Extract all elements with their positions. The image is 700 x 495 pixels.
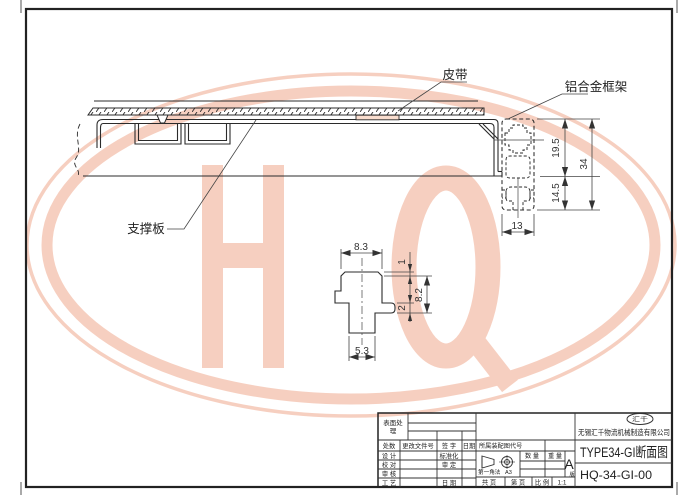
assembly-code-label: 所属装配图代号 xyxy=(479,442,522,450)
page-number-label: 第 页 xyxy=(511,478,525,487)
drawing-number: HQ-34-GI-00 xyxy=(580,470,652,482)
hq-letter-h xyxy=(202,165,284,368)
surface-treatment-label2: 理 xyxy=(390,427,397,435)
logo-text: 汇千 xyxy=(632,416,648,424)
version-suffix: 版 xyxy=(569,471,574,478)
surface-treatment-label: 表面处 xyxy=(383,418,403,427)
mid-standardize: 标准化 xyxy=(440,451,460,460)
dim-14-5: 14.5 xyxy=(551,183,562,203)
drawing-sheet: 皮带 铝合金框架 支撑板 19.5 14.5 34 13 xyxy=(0,0,700,495)
title-block: 表面处 理 处数 更改文件号 签 字 日期 设 计 校 对 审 核 工 艺 标准… xyxy=(378,413,672,487)
rev-header-count: 处数 xyxy=(383,441,396,450)
aluminum-frame-label: 铝合金框架 xyxy=(565,79,628,94)
belt-label: 皮带 xyxy=(442,68,467,82)
rev-header-date: 日期 xyxy=(463,442,476,450)
dim-34: 34 xyxy=(579,158,590,170)
row-process: 工 艺 xyxy=(382,479,396,487)
dim-5-3: 5.3 xyxy=(355,346,369,357)
rev-header-sign: 签 字 xyxy=(442,441,456,450)
aluminum-profile-section xyxy=(494,119,544,218)
row-check: 校 对 xyxy=(382,460,397,469)
dim-19-5: 19.5 xyxy=(551,138,562,158)
sheet-size: A3 xyxy=(505,470,512,476)
company-logo: 汇千 xyxy=(627,414,653,425)
dim-1: 1 xyxy=(397,259,408,265)
belt-section xyxy=(88,101,484,115)
drawing-title: TYPE34-GI断面图 xyxy=(580,445,668,460)
version-letter: A xyxy=(564,456,574,472)
projection-method-label: 第一角法 xyxy=(478,468,501,476)
row-design: 设 计 xyxy=(382,451,397,460)
support-plate-label: 支撑板 xyxy=(127,221,165,236)
pages-total-label: 共 页 xyxy=(482,478,496,487)
rev-header-docno: 更改文件号 xyxy=(402,441,433,450)
hq-watermark xyxy=(27,74,675,416)
main-dimensions: 19.5 14.5 34 13 xyxy=(502,119,600,236)
belt-guide-strip xyxy=(356,115,399,120)
hq-letter-q xyxy=(404,178,510,386)
weight-label: 重 量 xyxy=(548,452,562,460)
company-name: 无锡汇千物流机械制造有限公司 xyxy=(578,427,670,437)
qty-label: 数 量 xyxy=(525,452,539,460)
first-angle-projection-icon xyxy=(482,455,515,469)
guide-profile-outline xyxy=(335,272,395,333)
dim-13: 13 xyxy=(511,221,523,232)
scale-label: 比 例 xyxy=(535,478,549,487)
scale-value: 1:1 xyxy=(557,480,566,487)
mid-date: 日 期 xyxy=(442,479,456,487)
drawing-canvas: 皮带 铝合金框架 支撑板 19.5 14.5 34 13 xyxy=(0,0,700,495)
mid-approve: 审 定 xyxy=(442,460,457,469)
dim-8-2: 8.2 xyxy=(414,288,425,302)
dim-2: 2 xyxy=(397,305,408,311)
row-audit: 审 核 xyxy=(382,469,397,478)
dim-8-3: 8.3 xyxy=(354,242,368,253)
